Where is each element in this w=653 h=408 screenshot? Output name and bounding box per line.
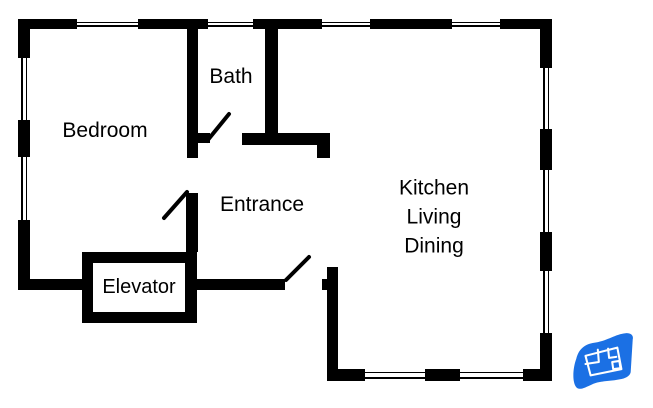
wall [18,120,30,157]
room-label-entrance: Entrance [220,192,304,218]
wall [198,133,210,143]
blueprint-logo-icon [567,328,643,398]
wall [540,232,552,271]
room-label-kitchen-living-dining: Kitchen Living Dining [399,174,469,261]
wall [540,129,552,170]
door-swing-bath [207,114,229,141]
window [322,19,370,29]
wall [317,145,330,158]
wall-entrance-bottom [197,279,285,290]
wall [523,369,552,381]
window [77,19,138,29]
wall-bath-left [187,19,198,158]
wall [253,19,322,29]
wall [370,19,452,29]
wall [540,19,552,68]
elevator-cab: Elevator [93,263,185,312]
window [365,369,425,381]
room-label-elevator: Elevator [102,275,175,300]
kitchen-label-line: Living [399,203,469,232]
wall-kitchen-left [327,267,338,381]
wall-bedroom-bottom [18,279,82,290]
window [540,271,552,333]
wall-bath-right [265,19,278,133]
wall [425,369,460,381]
window [208,19,253,29]
kitchen-label-line: Kitchen [399,174,469,203]
door-swing-bedroom [164,192,187,218]
room-label-bedroom: Bedroom [62,118,147,144]
wall [18,19,30,58]
window [540,68,552,129]
wall [242,133,330,145]
window [460,369,523,381]
window [540,170,552,232]
room-label-bath: Bath [209,64,252,90]
door-swing-entry [286,257,309,280]
kitchen-label-line: Dining [399,232,469,261]
floor-plan-canvas: Elevator Bedroom Bath Entrance Kitchen L… [0,0,653,408]
window [18,157,30,220]
window [452,19,500,29]
window [18,58,30,120]
wall-entrance-left [186,193,198,252]
